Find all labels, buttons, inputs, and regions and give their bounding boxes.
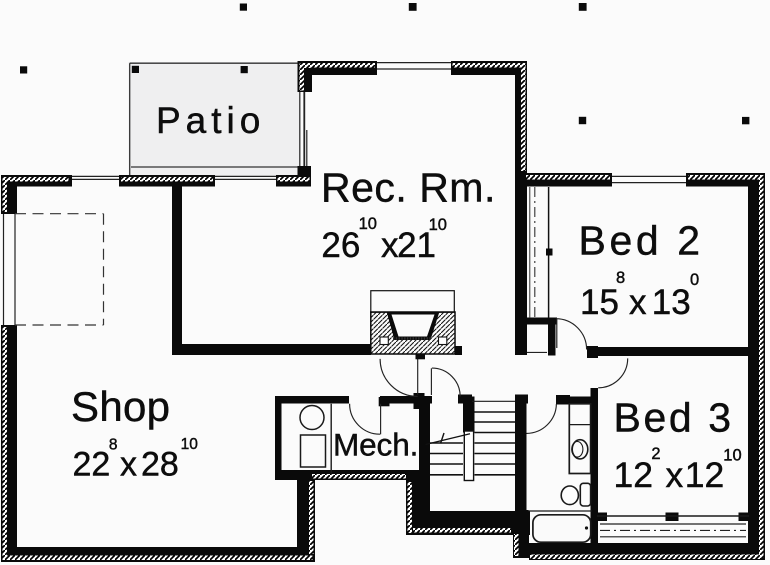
svg-text:28: 28: [141, 446, 179, 484]
svg-text:Shop: Shop: [71, 383, 170, 430]
svg-text:12: 12: [685, 455, 725, 495]
svg-text:Rec. Rm.: Rec. Rm.: [321, 164, 496, 210]
svg-text:10: 10: [429, 216, 447, 234]
svg-text:x: x: [120, 446, 137, 484]
svg-text:8: 8: [109, 437, 118, 454]
svg-text:x: x: [666, 455, 684, 495]
svg-text:12: 12: [614, 455, 654, 495]
svg-text:8: 8: [616, 269, 625, 287]
svg-text:10: 10: [359, 215, 377, 233]
svg-text:Bed 2: Bed 2: [579, 217, 704, 263]
svg-text:Patio: Patio: [156, 100, 265, 141]
svg-text:Mech.: Mech.: [333, 426, 418, 462]
svg-text:22: 22: [73, 446, 111, 484]
svg-text:10: 10: [723, 447, 741, 465]
svg-text:Bed 3: Bed 3: [614, 394, 734, 440]
svg-text:2: 2: [651, 445, 660, 463]
svg-text:x: x: [629, 283, 647, 322]
svg-text:10: 10: [181, 436, 199, 453]
svg-text:26: 26: [321, 226, 360, 265]
svg-text:0: 0: [690, 271, 699, 289]
svg-text:13: 13: [652, 283, 691, 322]
svg-text:15: 15: [580, 283, 619, 322]
